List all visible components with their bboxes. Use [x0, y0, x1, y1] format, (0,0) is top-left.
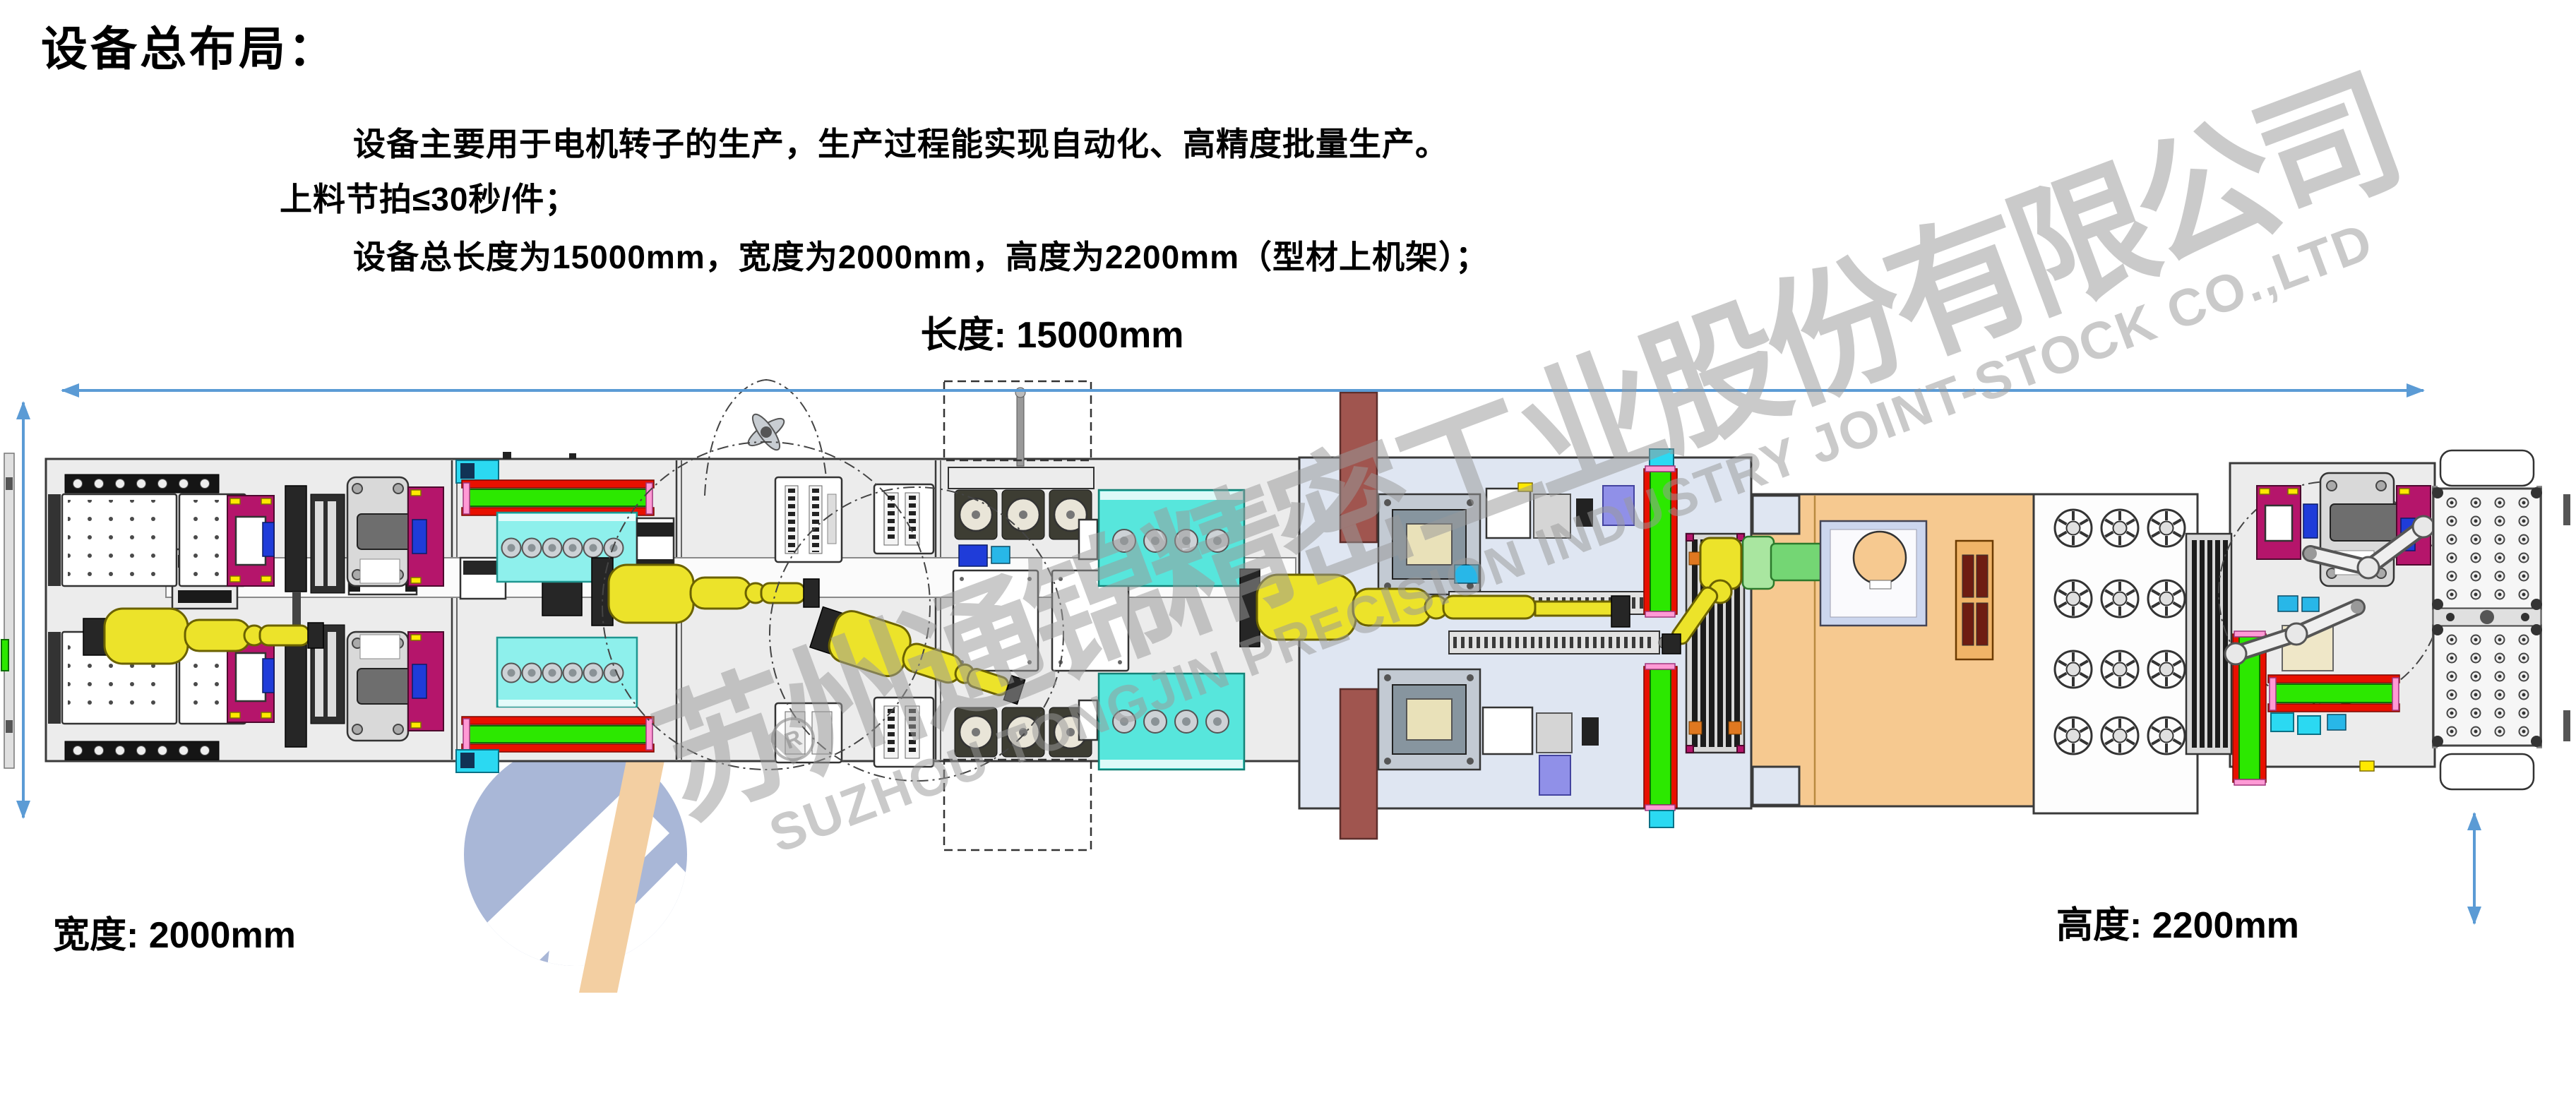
- description-line-1: 设备主要用于电机转子的生产，生产过程能实现自动化、高精度批量生产。: [353, 119, 1448, 165]
- length-dimension-label: 长度: 15000mm: [876, 305, 1229, 358]
- gantry-column: [285, 641, 306, 747]
- oven-port: [1854, 532, 1906, 584]
- left-edge-frame: [1, 453, 14, 768]
- propeller-part: [745, 411, 788, 454]
- green-machine-body: [1771, 544, 1823, 580]
- description-line-2: 上料节拍≤30秒/件；: [280, 174, 578, 220]
- clamp-fixture: [227, 496, 274, 586]
- motor-box-teal-bottom: [1079, 674, 1244, 770]
- fixture-block: [874, 484, 934, 554]
- pallet-cap-bottom: [2440, 754, 2534, 789]
- sensor-box: [959, 545, 987, 566]
- width-dimension-label: 宽度: 2000mm: [53, 905, 296, 958]
- press-fixture-bottom: [1378, 669, 1480, 770]
- clamp-cluster-top: [955, 490, 1092, 539]
- fixture-block: [775, 477, 842, 562]
- slotted-cabinet: [1956, 541, 1993, 659]
- vertical-conveyor-top: [1644, 449, 1677, 617]
- station-press-clamps: [948, 388, 1244, 770]
- description-line-3: 设备总长度为15000mm，宽度为2000mm，高度为2200mm（型材上机架）…: [353, 232, 1489, 278]
- control-box: [1539, 755, 1570, 795]
- sensor-box: [991, 546, 1010, 563]
- oven-cabinet: [1820, 521, 1926, 626]
- guard-outline-bottom: [944, 760, 1091, 850]
- vertical-conveyor-bottom: [1644, 664, 1677, 827]
- press-platen: [953, 570, 1038, 671]
- page-title: 设备总布局：: [41, 11, 338, 79]
- clamp-cluster-bottom: [955, 707, 1092, 757]
- pallet-stackers: [2432, 450, 2570, 789]
- control-box: [1603, 486, 1634, 525]
- pallet-cap-top: [2440, 450, 2534, 486]
- motor-box-teal-top: [1079, 490, 1244, 586]
- fixture-block: [874, 698, 934, 767]
- green-machine-head: [1743, 537, 1774, 589]
- frame-bar-top: [1340, 393, 1377, 542]
- frame-bar-bottom: [1340, 689, 1377, 839]
- gantry-column: [285, 486, 306, 592]
- height-dimension-label: 高度: 2200mm: [2056, 895, 2299, 948]
- tool-magazine-rack: [2186, 534, 2231, 754]
